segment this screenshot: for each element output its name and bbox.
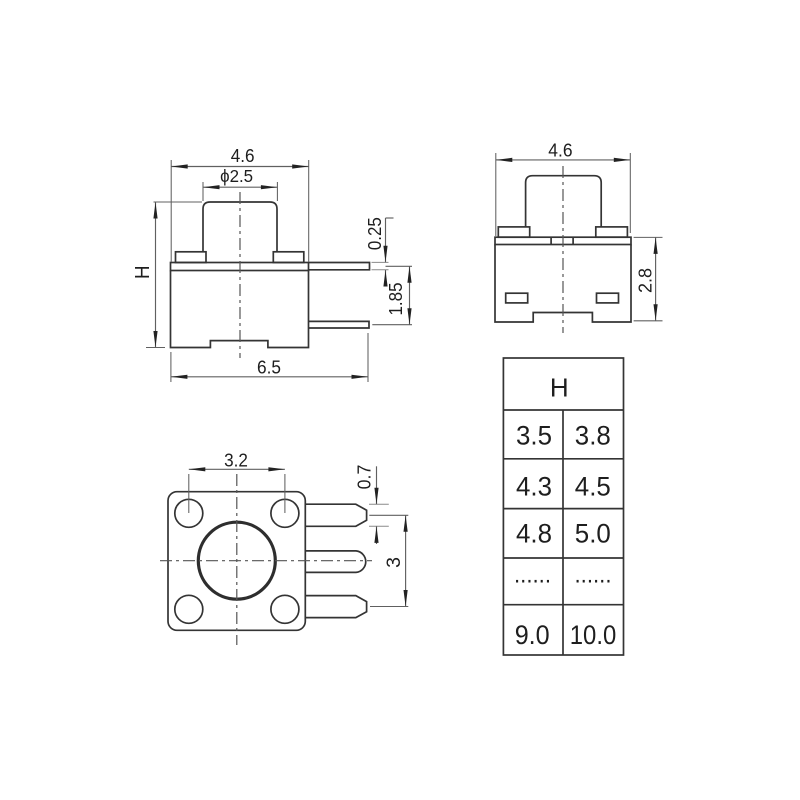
svg-text:4.6: 4.6 [231,145,255,166]
svg-text:1.85: 1.85 [385,283,406,316]
svg-text:......: ...... [575,562,612,589]
svg-text:0.25: 0.25 [364,217,385,250]
svg-text:4.5: 4.5 [575,471,611,501]
svg-text:5.0: 5.0 [575,518,611,548]
svg-text:4.6: 4.6 [548,139,572,160]
svg-text:......: ...... [514,562,551,589]
svg-text:0.7: 0.7 [354,465,375,490]
svg-text:ϕ2.5: ϕ2.5 [220,166,253,186]
svg-text:2.8: 2.8 [635,268,656,293]
svg-text:3.8: 3.8 [575,421,611,451]
svg-text:H: H [550,373,569,403]
svg-text:3.5: 3.5 [516,421,552,451]
svg-text:9.0: 9.0 [515,620,550,650]
svg-text:3.2: 3.2 [224,449,248,470]
svg-text:10.0: 10.0 [570,620,617,650]
svg-text:4.3: 4.3 [516,471,552,501]
svg-text:3: 3 [383,557,405,568]
svg-text:6.5: 6.5 [257,357,281,378]
svg-text:H: H [132,265,154,279]
svg-text:4.8: 4.8 [516,518,552,548]
